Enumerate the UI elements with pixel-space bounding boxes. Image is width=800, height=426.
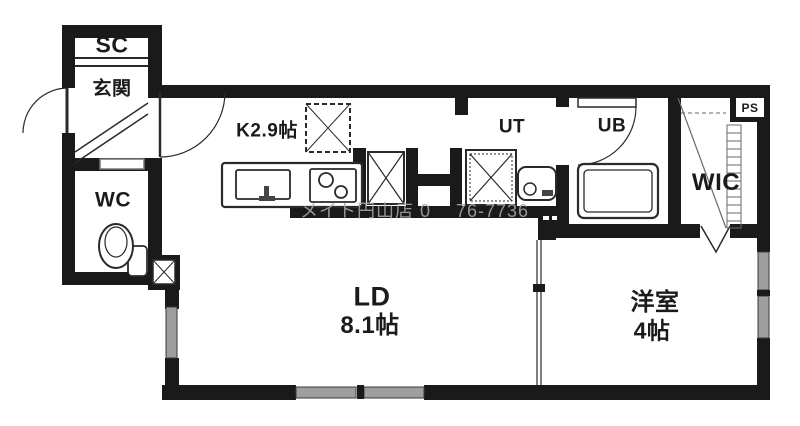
wall-ut-ub-upper [556, 85, 569, 107]
room-label-kitchen: K2.9帖 [236, 122, 298, 141]
wall-yoshitsu-top-right [730, 224, 770, 238]
wall-outer-left-lower [62, 133, 75, 285]
toilet-icon [99, 224, 147, 276]
room-label-wic: WIC [692, 171, 740, 195]
genkan-step-line-2 [75, 114, 148, 163]
refrigerator-icon [306, 104, 350, 152]
room-label-wc: WC [95, 190, 131, 211]
room-label-genkan: 玄関 [92, 80, 131, 99]
wc-sliding-door [100, 159, 144, 169]
sink-faucet-stem [264, 186, 269, 198]
room-label-western: 洋室 [631, 291, 680, 315]
room-size-ld: 8.1帖 [340, 314, 399, 338]
wall-wc-right [148, 158, 162, 258]
room-size-western: 4帖 [634, 320, 671, 343]
window-yoshitsu-right-2 [758, 296, 769, 338]
window-mullions [357, 290, 770, 399]
genkan-details [75, 58, 148, 163]
floorplan: SC 玄関 WC K2.9帖 UT UB WIC PS LD 8.1帖 洋室 4… [0, 0, 800, 426]
room-label-ut: UT [499, 118, 525, 137]
ub-door-leaf [578, 98, 636, 107]
wall-bottom-right [424, 385, 770, 400]
shop-watermark: メイト円山店 0 76-7736 [300, 197, 529, 223]
wic-folding-door [701, 226, 730, 252]
sliding-partition-handle [533, 284, 545, 292]
washbasin-icon [518, 167, 556, 200]
bathtub-icon [578, 164, 658, 218]
toilet-bowl-inner [105, 227, 127, 257]
windows [166, 252, 769, 398]
window-ld-bottom-2 [364, 387, 424, 398]
entrance-door-arc [23, 88, 68, 133]
wall-ld-left-upper [165, 285, 179, 309]
room-label-sc: SC [96, 34, 129, 57]
window-ld-left [166, 307, 177, 358]
kitchen-door-arc [160, 92, 225, 157]
window-yoshitsu-right-1 [758, 252, 769, 290]
wall-ut-left-top [455, 85, 468, 115]
room-label-ps: PS [741, 102, 758, 114]
meter-x-box-icon [153, 260, 175, 284]
wall-genkan-right [148, 25, 162, 92]
room-label-ub: UB [598, 117, 626, 136]
genkan-step-line-1 [75, 103, 148, 152]
wic-diagonal-line [678, 98, 726, 228]
wall-bottom-left [162, 385, 296, 400]
wall-mid-bar [418, 174, 450, 186]
window-ld-bottom-1 [296, 387, 356, 398]
room-label-ld: LD [354, 284, 391, 311]
kitchen-sink-icon [236, 170, 290, 199]
wall-ub-wic [668, 85, 681, 238]
